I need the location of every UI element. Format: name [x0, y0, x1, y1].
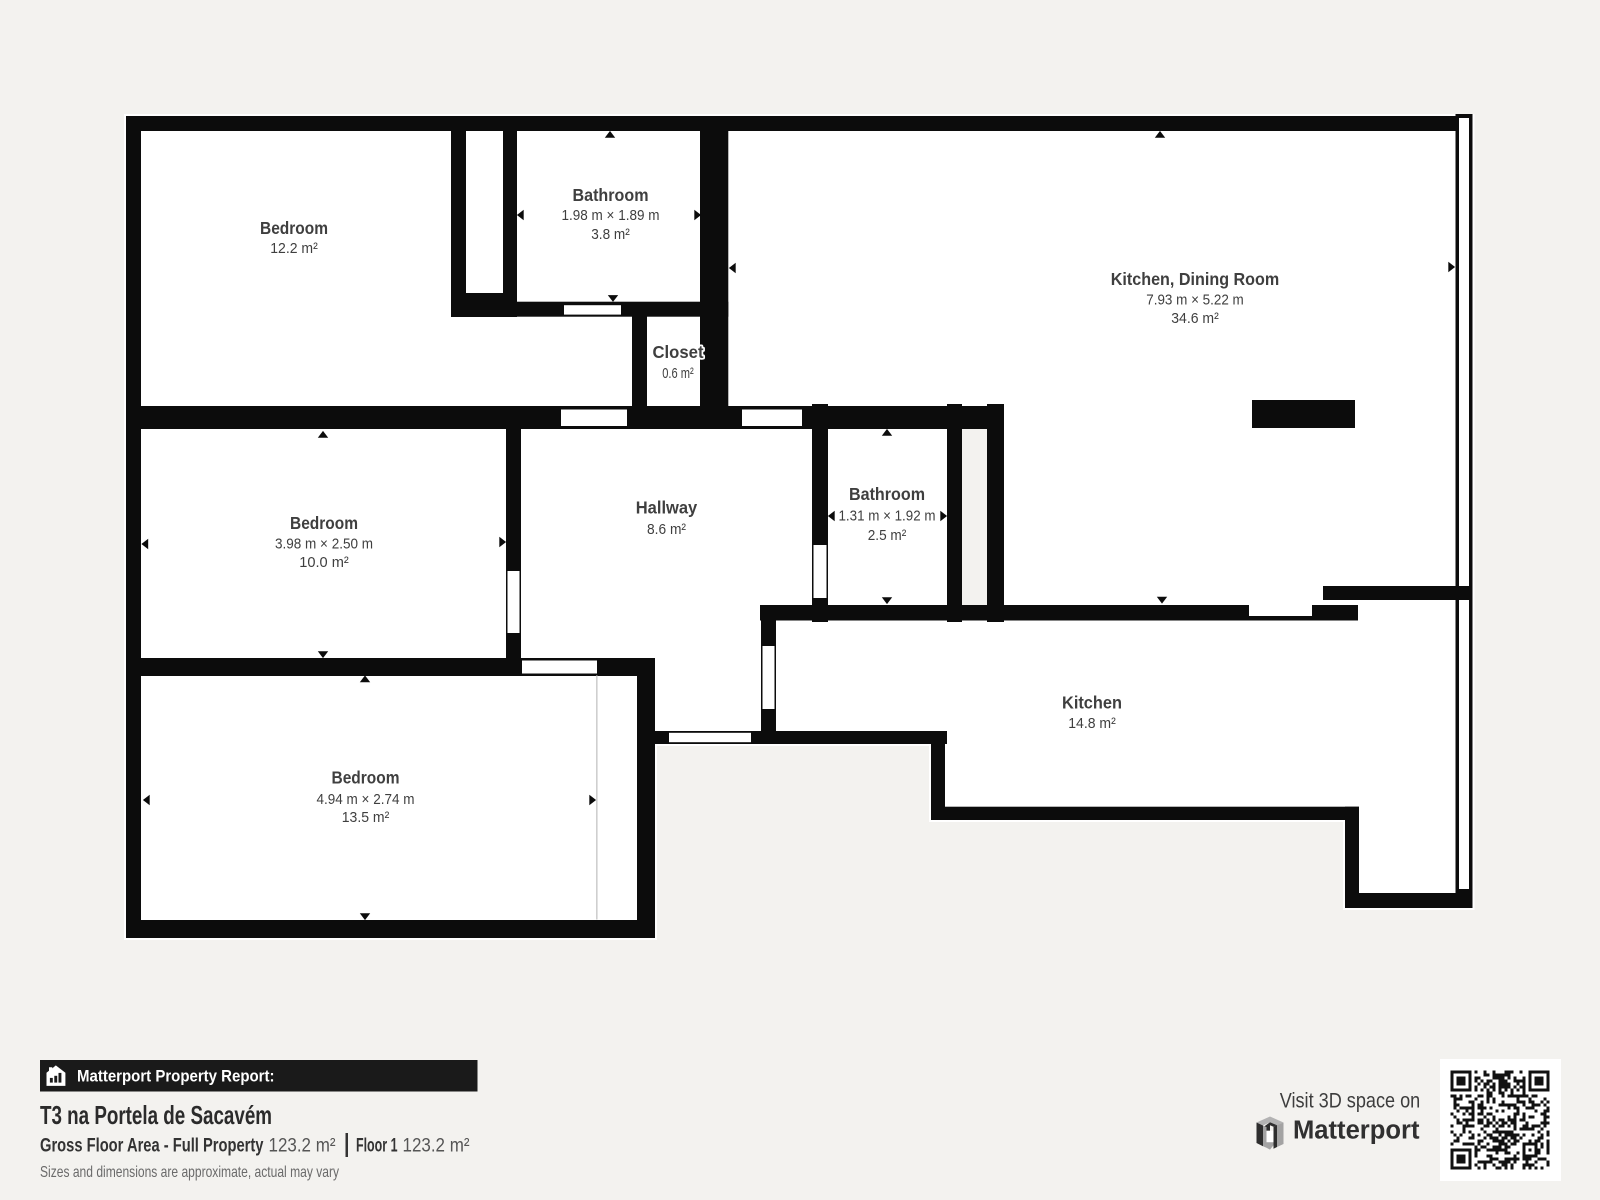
svg-text:14.8 m²: 14.8 m²	[1068, 715, 1116, 732]
svg-text:8.6 m²: 8.6 m²	[647, 521, 686, 538]
svg-text:2.5 m²: 2.5 m²	[868, 527, 907, 544]
svg-text:123.2 m²: 123.2 m²	[403, 1136, 470, 1157]
svg-text:7.93 m × 5.22 m: 7.93 m × 5.22 m	[1146, 292, 1244, 309]
svg-text:Kitchen: Kitchen	[1062, 693, 1122, 713]
svg-text:3.8 m²: 3.8 m²	[591, 226, 630, 243]
svg-text:Bedroom: Bedroom	[290, 513, 358, 533]
svg-text:123.2 m²: 123.2 m²	[269, 1136, 336, 1157]
svg-text:34.6 m²: 34.6 m²	[1171, 310, 1219, 327]
svg-text:10.0 m²: 10.0 m²	[299, 554, 349, 571]
svg-text:3.98 m × 2.50 m: 3.98 m × 2.50 m	[275, 536, 373, 553]
svg-text:Matterport: Matterport	[1293, 1117, 1420, 1145]
svg-text:Hallway: Hallway	[636, 498, 698, 518]
svg-text:0.6 m²: 0.6 m²	[662, 365, 694, 382]
svg-text:12.2 m²: 12.2 m²	[270, 240, 318, 257]
svg-text:1.31 m × 1.92 m: 1.31 m × 1.92 m	[839, 508, 936, 525]
svg-text:T3 na Portela de Sacavém: T3 na Portela de Sacavém	[40, 1100, 272, 1130]
svg-text:1.98 m × 1.89 m: 1.98 m × 1.89 m	[562, 207, 660, 224]
svg-text:Matterport Property Report:: Matterport Property Report:	[77, 1067, 275, 1086]
svg-text:Closet: Closet	[653, 342, 704, 362]
svg-text:Kitchen, Dining Room: Kitchen, Dining Room	[1111, 269, 1280, 289]
svg-text:Bedroom: Bedroom	[332, 768, 400, 788]
svg-text:Visit 3D space on: Visit 3D space on	[1280, 1090, 1421, 1113]
svg-text:Bedroom: Bedroom	[260, 218, 328, 238]
svg-text:13.5 m²: 13.5 m²	[342, 809, 390, 826]
svg-text:Sizes and dimensions are appro: Sizes and dimensions are approximate, ac…	[40, 1164, 339, 1181]
svg-text:Floor 1: Floor 1	[356, 1136, 398, 1157]
svg-text:4.94 m × 2.74 m: 4.94 m × 2.74 m	[317, 791, 415, 808]
svg-text:Bathroom: Bathroom	[849, 484, 925, 504]
svg-text:Gross Floor Area - Full Proper: Gross Floor Area - Full Property	[40, 1136, 264, 1157]
svg-text:Bathroom: Bathroom	[573, 185, 649, 205]
